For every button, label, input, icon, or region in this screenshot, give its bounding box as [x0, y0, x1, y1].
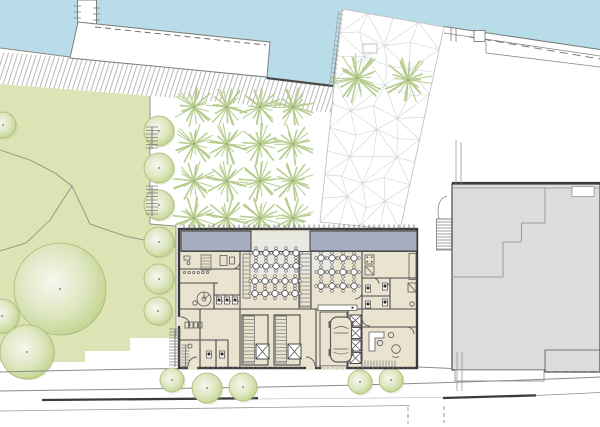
- car-body: [331, 317, 352, 362]
- chair: [254, 297, 257, 300]
- chair: [342, 276, 345, 279]
- burst-tree-ray: [227, 183, 228, 201]
- chair: [265, 247, 268, 250]
- chair: [353, 280, 356, 283]
- chair: [353, 290, 356, 293]
- chair: [299, 280, 302, 283]
- chair: [353, 252, 356, 255]
- chair: [250, 252, 253, 255]
- burst-tree-ray: [249, 106, 258, 107]
- chair: [264, 275, 267, 278]
- dining-table: [262, 290, 268, 296]
- burst-tree-center: [226, 106, 229, 109]
- street-tree-trunk: [171, 379, 173, 381]
- chair: [255, 260, 258, 263]
- chair: [320, 290, 323, 293]
- chair: [348, 271, 351, 274]
- chair: [280, 252, 283, 255]
- plaza-burst-tree-center: [356, 77, 359, 80]
- burner-1: [366, 256, 368, 258]
- chair: [320, 276, 323, 279]
- dining-table: [252, 290, 258, 296]
- plaza-burst-tree-ray: [331, 78, 355, 79]
- chair: [295, 270, 298, 273]
- burst-tree-center: [226, 180, 229, 183]
- dining-table: [283, 263, 289, 269]
- chair: [270, 265, 273, 268]
- wc-seat: [366, 302, 369, 305]
- chair: [342, 280, 345, 283]
- chair: [265, 257, 268, 260]
- chair: [285, 260, 288, 263]
- dining-table: [340, 283, 346, 289]
- wc-seat: [383, 300, 386, 303]
- chair: [337, 285, 340, 288]
- burst-tree-center: [193, 217, 196, 220]
- bar-counter: [318, 305, 357, 311]
- chair: [331, 290, 334, 293]
- burst-tree-ray: [227, 146, 228, 164]
- street-tree-trunk: [242, 386, 244, 388]
- dining-table: [293, 263, 299, 269]
- chair: [280, 265, 283, 268]
- site-plan: [0, 0, 600, 427]
- chair: [274, 297, 277, 300]
- chair: [254, 275, 257, 278]
- park-tree-trunk: [1, 315, 3, 317]
- chair: [275, 270, 278, 273]
- chair: [290, 265, 293, 268]
- car: [329, 317, 354, 362]
- dining-table: [253, 250, 259, 256]
- chair: [254, 287, 257, 290]
- burst-tree-center: [259, 143, 262, 146]
- chair: [294, 287, 297, 290]
- chair: [326, 285, 329, 288]
- dining-table: [272, 290, 278, 296]
- chair: [331, 262, 334, 265]
- gray-building-footprint: [452, 184, 600, 372]
- dining-table: [263, 263, 269, 269]
- chair: [337, 271, 340, 274]
- chair: [274, 285, 277, 288]
- chair: [294, 285, 297, 288]
- chair: [348, 285, 351, 288]
- dining-table: [351, 269, 357, 275]
- chair: [274, 275, 277, 278]
- burst-tree-center: [193, 106, 196, 109]
- burst-tree-center: [193, 143, 196, 146]
- chair: [342, 266, 345, 269]
- dining-table: [329, 269, 335, 275]
- chair: [326, 257, 329, 260]
- wc-seat: [207, 352, 210, 355]
- chair: [284, 297, 287, 300]
- dining-table: [283, 250, 289, 256]
- burst-tree-center: [226, 143, 229, 146]
- bollard-structure: [474, 31, 485, 42]
- park-tree-trunk: [59, 288, 61, 290]
- burner-3: [366, 261, 368, 263]
- chair: [289, 292, 292, 295]
- dining-table: [292, 278, 298, 284]
- dining-table: [263, 250, 269, 256]
- chair: [270, 252, 273, 255]
- chair: [320, 280, 323, 283]
- chair: [254, 285, 257, 288]
- chair: [320, 266, 323, 269]
- plaza-burst-tree-ray: [359, 77, 371, 78]
- burst-tree-center: [292, 143, 295, 146]
- dining-table: [252, 278, 258, 284]
- chair: [320, 252, 323, 255]
- wc-seat: [220, 352, 223, 355]
- park-row-tree-trunk: [158, 167, 160, 169]
- chair: [295, 257, 298, 260]
- chair: [342, 262, 345, 265]
- chair: [315, 257, 318, 260]
- burst-tree-center: [259, 180, 262, 183]
- chair: [353, 266, 356, 269]
- chair: [284, 275, 287, 278]
- chair: [255, 247, 258, 250]
- chair: [260, 265, 263, 268]
- dining-table: [282, 290, 288, 296]
- chair: [275, 257, 278, 260]
- park-row-tree-trunk: [158, 278, 160, 280]
- counter-tap: [351, 307, 353, 309]
- chair: [331, 266, 334, 269]
- rooftop-box: [572, 187, 594, 197]
- park-row-tree-trunk: [158, 204, 160, 206]
- park-tree-trunk: [157, 310, 159, 312]
- plaza-structure: [363, 44, 377, 53]
- burst-tree-center: [259, 106, 262, 109]
- burst-tree-center: [292, 106, 295, 109]
- chair: [285, 270, 288, 273]
- chair: [315, 271, 318, 274]
- dining-table: [329, 283, 335, 289]
- plaza-burst-tree-center: [407, 79, 410, 82]
- dining-table: [272, 278, 278, 284]
- door-gap-west: [178, 317, 182, 326]
- chair: [259, 292, 262, 295]
- park-row-tree-trunk: [158, 241, 160, 243]
- chair: [331, 276, 334, 279]
- chair: [294, 297, 297, 300]
- chair: [295, 247, 298, 250]
- chair: [264, 297, 267, 300]
- chair: [358, 257, 361, 260]
- burner-4: [371, 261, 373, 263]
- door-gap-south-1: [188, 366, 197, 370]
- wc-seat: [366, 286, 369, 289]
- chair: [275, 260, 278, 263]
- chair: [260, 252, 263, 255]
- wc-seat: [383, 284, 386, 287]
- dining-table: [351, 283, 357, 289]
- chair: [337, 257, 340, 260]
- burst-tree-center: [226, 217, 229, 220]
- chair: [342, 290, 345, 293]
- dining-table: [340, 269, 346, 275]
- chair: [331, 252, 334, 255]
- dining-table: [273, 263, 279, 269]
- chair: [289, 280, 292, 283]
- dining-table: [351, 255, 357, 261]
- dining-table: [253, 263, 259, 269]
- chair: [255, 270, 258, 273]
- park-row-tree-trunk: [158, 130, 160, 132]
- burner-2: [371, 256, 373, 258]
- street-tree-trunk: [390, 379, 392, 381]
- park-tree-trunk: [26, 351, 28, 353]
- dining-table: [262, 278, 268, 284]
- chair: [353, 262, 356, 265]
- street-tree-trunk: [359, 381, 361, 383]
- chair: [264, 287, 267, 290]
- chair: [250, 265, 253, 268]
- chair: [275, 247, 278, 250]
- wc-seat: [233, 298, 236, 301]
- dining-table: [282, 278, 288, 284]
- dining-table: [292, 290, 298, 296]
- chair: [279, 280, 282, 283]
- chair: [358, 271, 361, 274]
- chair: [326, 271, 329, 274]
- chair: [353, 276, 356, 279]
- chair: [348, 257, 351, 260]
- chair: [358, 285, 361, 288]
- burst-tree-center: [292, 217, 295, 220]
- chair: [331, 280, 334, 283]
- burst-tree-center: [259, 217, 262, 220]
- chair: [249, 280, 252, 283]
- chair: [290, 252, 293, 255]
- chair: [299, 292, 302, 295]
- burst-tree-center: [292, 180, 295, 183]
- chair: [342, 252, 345, 255]
- chair: [269, 280, 272, 283]
- door-gap-south-2: [306, 366, 315, 370]
- park-tree-trunk: [2, 124, 4, 126]
- chair: [295, 260, 298, 263]
- chair: [284, 287, 287, 290]
- chair: [294, 275, 297, 278]
- chair: [300, 252, 303, 255]
- site-plan-svg: [0, 0, 600, 427]
- dining-table: [318, 269, 324, 275]
- dining-table: [293, 250, 299, 256]
- chair: [269, 292, 272, 295]
- burst-tree-center: [193, 180, 196, 183]
- chair: [264, 285, 267, 288]
- chair: [274, 287, 277, 290]
- wc-seat: [225, 298, 228, 301]
- chair: [284, 285, 287, 288]
- chair: [279, 292, 282, 295]
- street-tree-trunk: [206, 387, 208, 389]
- dining-table: [318, 255, 324, 261]
- chair: [285, 257, 288, 260]
- chair: [315, 285, 318, 288]
- chair: [285, 247, 288, 250]
- dining-table: [318, 283, 324, 289]
- chair: [265, 260, 268, 263]
- chair: [255, 257, 258, 260]
- dining-table: [329, 255, 335, 261]
- roof-band-east: [310, 231, 417, 251]
- chair: [259, 280, 262, 283]
- chair: [320, 262, 323, 265]
- roof-band-west: [181, 231, 251, 251]
- chair: [300, 265, 303, 268]
- chair: [249, 292, 252, 295]
- chair: [265, 270, 268, 273]
- dining-table: [340, 255, 346, 261]
- wc-seat: [217, 298, 220, 301]
- dining-table: [273, 250, 279, 256]
